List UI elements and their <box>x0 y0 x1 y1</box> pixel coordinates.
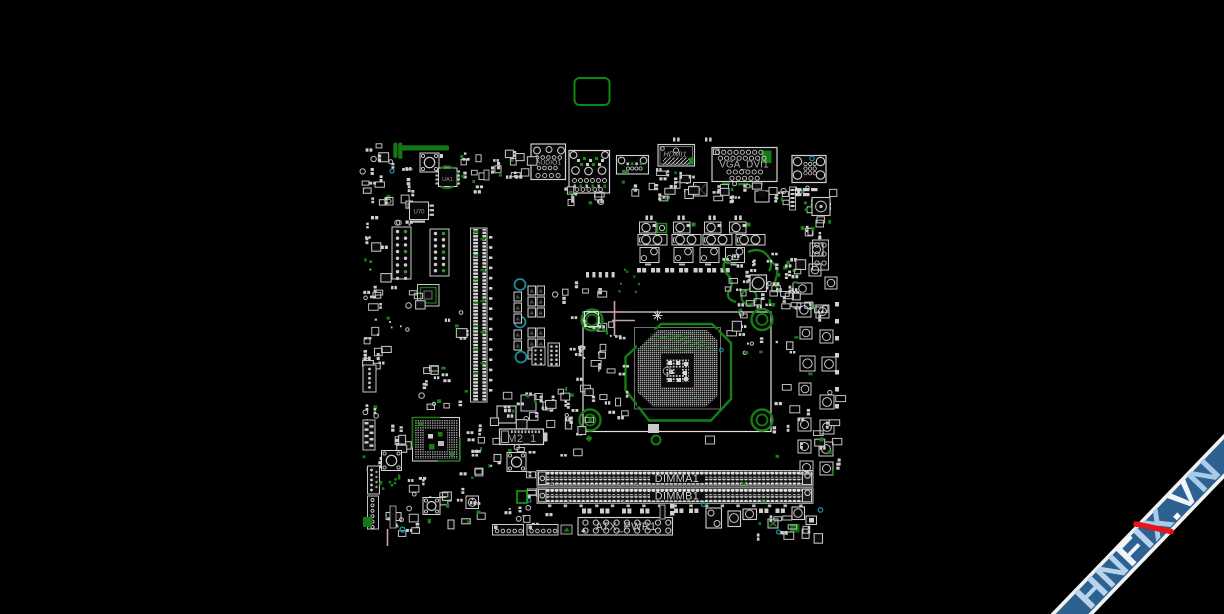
svg-text:U70: U70 <box>413 210 425 216</box>
svg-text:AUDIO1: AUDIO1 <box>536 160 562 167</box>
svg-text:HDMI1: HDMI1 <box>663 150 686 159</box>
svg-text:DIMMB1: DIMMB1 <box>655 490 699 502</box>
svg-text:M2_1: M2_1 <box>507 433 537 445</box>
svg-text:UA1: UA1 <box>442 177 453 183</box>
svg-text:DIMMA1: DIMMA1 <box>655 473 699 485</box>
svg-text:ATX_PWR1: ATX_PWR1 <box>596 521 657 533</box>
svg-text:VGA_DVI1: VGA_DVI1 <box>719 160 769 171</box>
